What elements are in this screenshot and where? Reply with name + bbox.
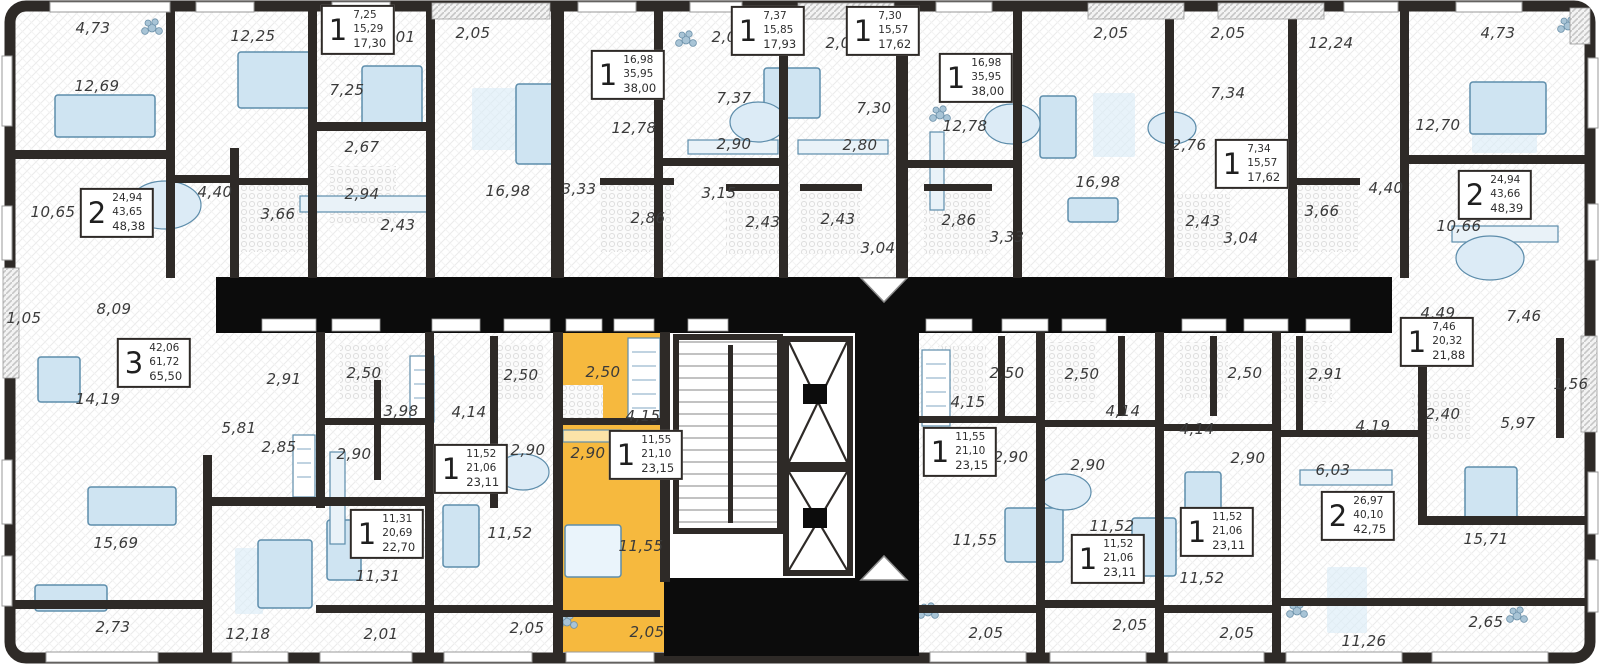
bed (258, 540, 312, 608)
bed (1005, 508, 1063, 562)
sofa (1185, 472, 1221, 532)
sofa (1040, 96, 1076, 158)
bed (516, 84, 556, 164)
corner-sofa (1470, 82, 1546, 134)
bed (1465, 467, 1517, 523)
bed (443, 505, 479, 567)
bench (1068, 198, 1118, 222)
elevators (786, 339, 850, 573)
sofa (55, 95, 155, 137)
sofa (1132, 518, 1176, 576)
floorplan-drawing (0, 0, 1600, 664)
bed (362, 66, 422, 130)
sofa (88, 487, 176, 525)
bed (565, 525, 621, 577)
table (38, 357, 80, 402)
shaft-void (855, 333, 919, 656)
stairwell (676, 337, 780, 531)
core-void (664, 578, 855, 656)
floorplan-page: 4,7312,252,012,0512,697,252,674,402,9410… (0, 0, 1600, 664)
bed (238, 52, 316, 108)
